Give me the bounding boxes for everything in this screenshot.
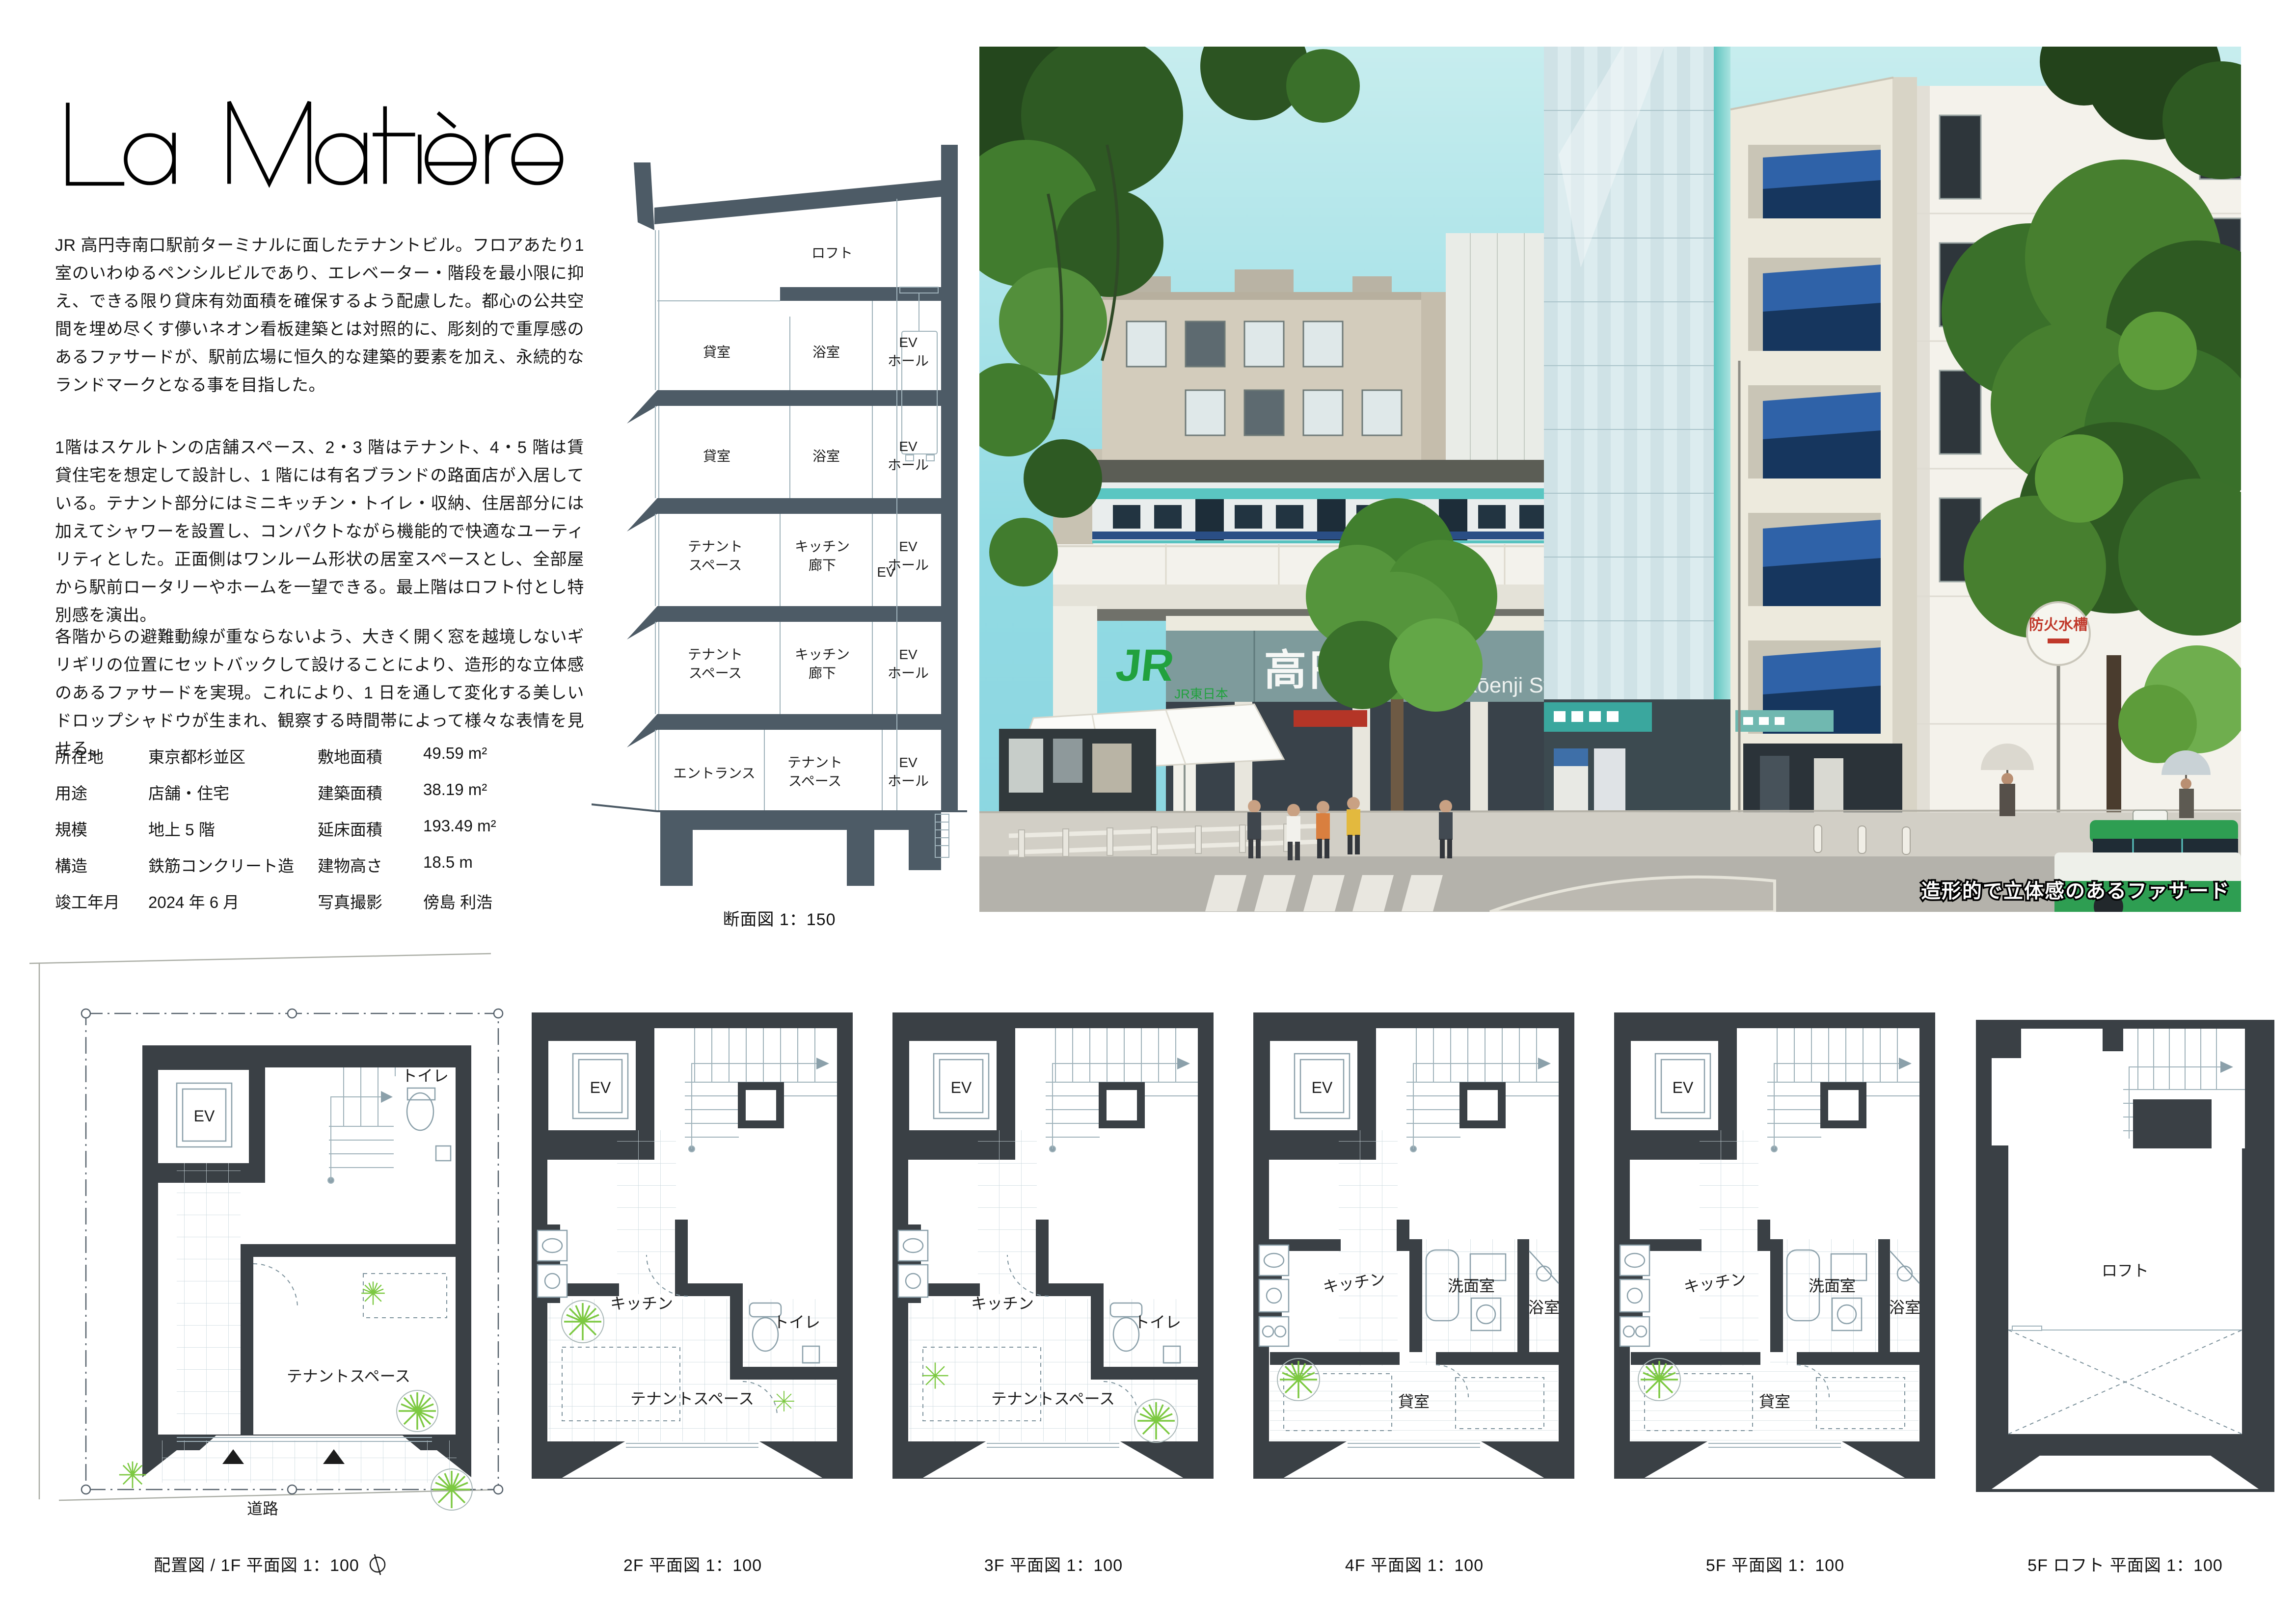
plan5-label-room: 貸室	[1759, 1393, 1790, 1410]
section-right-wall	[941, 145, 958, 812]
section-label-kitchen-3f: キッチン	[795, 539, 850, 554]
plan4-label-washroom: 洗面室	[1448, 1277, 1495, 1295]
section-label-kitchen-2f: 廊下	[809, 665, 836, 681]
presentation-board: La Matière JR 高円寺南口駅前ターミナルに面したテナントビル。フロア…	[0, 0, 2296, 1623]
section-label-kashitsu-5f: 貸室	[703, 345, 730, 360]
loft-void-x	[2008, 1330, 2242, 1434]
spec-label: 敷地面積	[318, 744, 423, 768]
plan-5f: EV 洗面室 浴室 キッチン	[1610, 1009, 1940, 1507]
spec-label: 所在地	[55, 744, 148, 768]
plan2-caption: 2F 平面図 1：100	[528, 1552, 858, 1576]
plan6-caption: 5F ロフト 平面図 1：100	[1971, 1552, 2279, 1576]
plan4-label-room: 貸室	[1398, 1393, 1430, 1410]
section-label-evhall-3f: EV	[899, 539, 918, 554]
building-photo: JR JR東日本 高円寺駅 Kōenji Station	[979, 47, 2241, 912]
la-matiere-building	[1730, 77, 1917, 861]
plan-3f: EV キッチン トイレ テナントスペース	[889, 1009, 1218, 1507]
spec-table: 所在地 東京都杉並区 敷地面積 49.59 m² 用途 店舗・住宅 建築面積 3…	[55, 744, 575, 913]
section-label-evhall-2f: ホール	[888, 665, 929, 681]
jr-logo: JR	[1113, 639, 1177, 691]
spec-value: 傍島 利浩	[423, 889, 575, 913]
section-room-labels: ロフト 貸室 浴室 EV ホール 貸室 浴室 EV ホール テナント スペース …	[673, 245, 929, 789]
plan4-caption: 4F 平面図 1：100	[1249, 1552, 1579, 1576]
section-ground	[592, 804, 967, 886]
plants-4f	[1277, 1358, 1320, 1401]
plan3-label-tenant: テナントスペース	[991, 1390, 1115, 1408]
photo-caption: 造形的で立体感のあるファサード	[1921, 880, 2230, 902]
section-label-kitchen-2f: キッチン	[795, 647, 850, 662]
intro-paragraph-2: 1階はスケルトンの店舗スペース、2・3 階はテナント、4・5 階は賃貸住宅を想定…	[55, 434, 584, 630]
fire-sign-label: 防火水槽	[2029, 617, 2088, 633]
plan3-label-kitchen: キッチン	[971, 1295, 1034, 1312]
plan-loft: ロフト	[1971, 1016, 2279, 1502]
plan1-label-road: 道路	[247, 1500, 278, 1517]
stair-1f	[328, 1067, 403, 1183]
spec-value: 地上 5 階	[148, 817, 318, 840]
section-loft-slab	[780, 287, 941, 301]
spec-label: 構造	[55, 853, 148, 877]
plan1-label-tenant: テナントスペース	[287, 1367, 410, 1385]
north-arrow-icon	[366, 1553, 389, 1576]
inner-walls-1f	[241, 1244, 466, 1435]
section-label-ev: EV	[877, 564, 895, 580]
plan4-label-ev: EV	[1312, 1079, 1333, 1096]
platform-canopy	[1092, 460, 1613, 482]
plants-5f	[1638, 1358, 1680, 1401]
spec-label: 竣工年月	[55, 889, 148, 913]
spec-value: 18.5 m	[423, 853, 575, 877]
plan-4f: EV 洗面室 浴室 キッチン	[1249, 1009, 1579, 1507]
spec-value: 店舗・住宅	[148, 780, 318, 804]
plan2-label-ev: EV	[590, 1079, 611, 1096]
plan5-caption: 5F 平面図 1：100	[1610, 1552, 1940, 1576]
spec-label: 建物高さ	[318, 853, 423, 877]
section-elevator-car	[900, 287, 938, 461]
plan-2f: EV キッチン トイレ テナントスペース	[528, 1009, 858, 1507]
logo-la-matiere: La Matière	[55, 73, 566, 199]
building-1f: EV トイレ テナントスペース	[119, 1045, 472, 1510]
section-label-tenant-3f: スペース	[689, 558, 742, 573]
section-label-evhall-1f: EV	[899, 755, 918, 770]
spec-label: 写真撮影	[318, 889, 423, 913]
section-label-evhall-1f: ホール	[888, 773, 929, 789]
plan6-label-loft: ロフト	[2102, 1262, 2149, 1279]
spec-label: 延床面積	[318, 817, 423, 840]
section-label-tenant-2f: スペース	[689, 665, 742, 681]
plan1-caption: 配置図 / 1F 平面図 1：100	[29, 1552, 513, 1576]
spec-label: 用途	[55, 780, 148, 804]
intro-paragraph-1: JR 高円寺南口駅前ターミナルに面したテナントビル。フロアあたり1室のいわゆるペ…	[55, 232, 584, 399]
stair-arrow	[381, 1091, 393, 1103]
coffee-shop-sign	[1294, 710, 1367, 727]
spec-label: 建築面積	[318, 780, 423, 804]
plan2-label-kitchen: キッチン	[610, 1295, 673, 1312]
plan4-label-bath: 浴室	[1528, 1299, 1560, 1316]
section-caption: 断面図 1：150	[592, 906, 967, 930]
plan2-label-tenant: テナントスペース	[630, 1390, 754, 1408]
jr-company-label: JR東日本	[1174, 687, 1228, 701]
section-label-tenant-2f: テナント	[688, 647, 743, 662]
section-label-evhall-4f: EV	[899, 439, 918, 454]
spec-value: 38.19 m²	[423, 780, 575, 804]
toilet-room-1f	[394, 1076, 456, 1189]
plan1-label-ev: EV	[194, 1107, 215, 1125]
section-parapet	[634, 162, 654, 230]
plan1-caption-text: 配置図 / 1F 平面図 1：100	[154, 1556, 359, 1575]
section-label-kashitsu-4f: 貸室	[703, 449, 730, 464]
section-drawing: ロフト 貸室 浴室 EV ホール 貸室 浴室 EV ホール テナント スペース …	[592, 125, 967, 893]
plan3-label-ev: EV	[951, 1079, 972, 1096]
kitchen-fixtures-4f	[1259, 1245, 1289, 1346]
plan5-label-washroom: 洗面室	[1809, 1277, 1856, 1295]
intro-paragraph-3: 各階からの避難動線が重ならないよう、大きく開く窓を越境しないギリギリの位置にセッ…	[55, 623, 584, 763]
spec-value: 東京都杉並区	[148, 744, 318, 768]
spec-value: 49.59 m²	[423, 744, 575, 768]
section-label-evhall-5f: ホール	[888, 353, 929, 369]
section-label-tenant-3f: テナント	[688, 539, 743, 554]
section-label-yokushitsu-4f: 浴室	[812, 449, 840, 464]
plan-1f: EV トイレ テナントスペース	[29, 950, 513, 1521]
plan5-label-ev: EV	[1673, 1079, 1694, 1096]
plan3-label-toilet: トイレ	[1134, 1313, 1181, 1331]
entry-tiles	[162, 1440, 457, 1483]
corridor-tiles	[177, 1163, 241, 1435]
plan3-caption: 3F 平面図 1：100	[889, 1552, 1218, 1576]
spec-value: 鉄筋コンクリート造	[148, 853, 318, 877]
section-roof-slab	[654, 180, 941, 224]
glass-tower	[1544, 47, 1730, 861]
kitchen-fixtures-5f	[1620, 1245, 1649, 1346]
plan2-label-toilet: トイレ	[773, 1313, 820, 1331]
plan1-label-toilet: トイレ	[402, 1067, 449, 1085]
spec-value: 193.49 m²	[423, 817, 575, 840]
section-label-tenant-1f: スペース	[788, 773, 842, 789]
spec-label: 規模	[55, 817, 148, 840]
road-lines	[29, 954, 503, 1500]
section-label-yokushitsu-5f: 浴室	[812, 345, 840, 360]
section-label-evhall-2f: EV	[899, 647, 918, 662]
section-label-evhall-4f: ホール	[888, 457, 929, 473]
spec-value: 2024 年 6 月	[148, 889, 318, 913]
section-label-entrance: エントランス	[673, 766, 755, 781]
section-label-tenant-1f: テナント	[787, 755, 842, 770]
section-label-loft: ロフト	[811, 245, 853, 261]
section-label-kitchen-3f: 廊下	[809, 558, 836, 573]
logo-strokes	[68, 102, 562, 184]
section-label-evhall-5f: EV	[899, 335, 918, 350]
plan5-label-bath: 浴室	[1889, 1299, 1920, 1316]
